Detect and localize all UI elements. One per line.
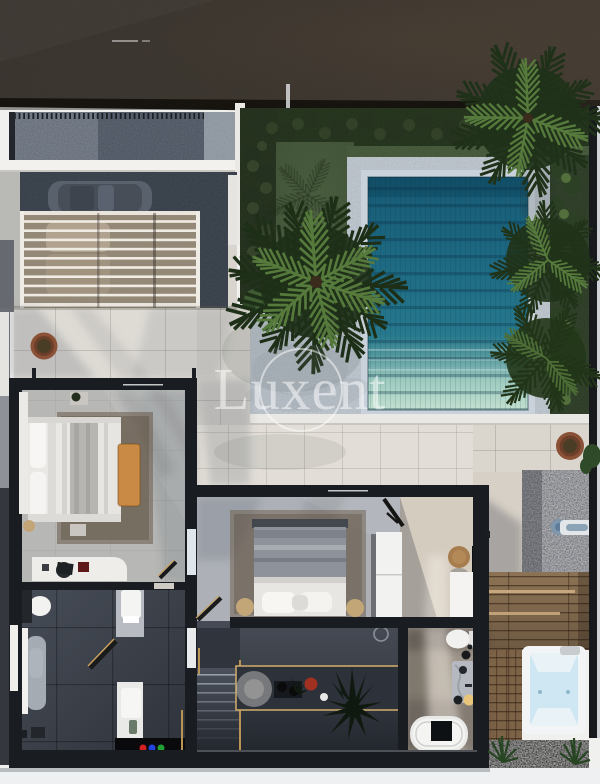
svg-text:Luxent: Luxent (213, 356, 386, 422)
